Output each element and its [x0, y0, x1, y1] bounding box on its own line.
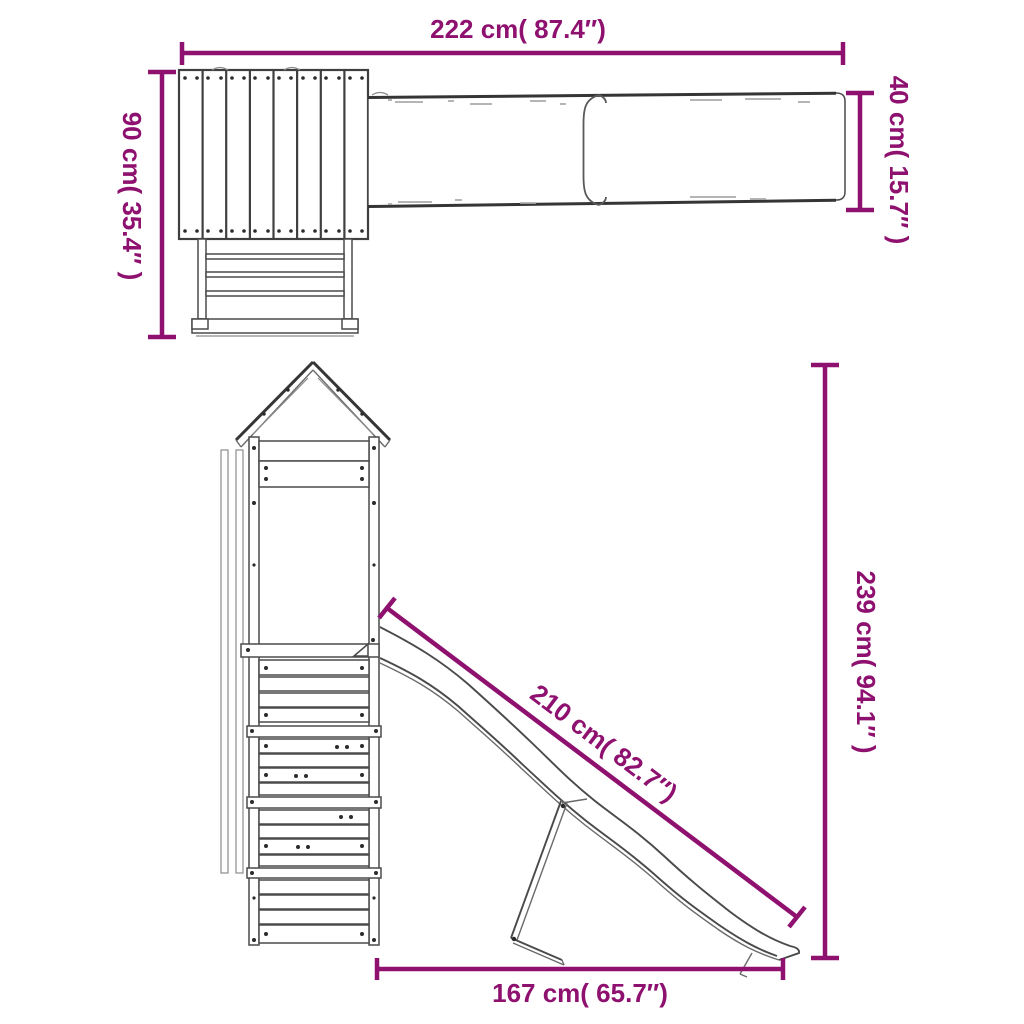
top-view-drawing	[179, 68, 845, 337]
dim-overall-height: 239 cm( 94.1″ )	[811, 365, 881, 958]
side-view-roof	[236, 362, 390, 447]
dim-tower-depth: 90 cm( 35.4″ )	[117, 72, 176, 337]
dim-label-slide-width: 40 cm( 15.7″ )	[884, 76, 914, 245]
side-view-slide	[380, 627, 799, 977]
side-view-tower	[221, 437, 381, 945]
side-view-dimensions: 210 cm( 82.7″) 239 cm( 94.1″ ) 167 cm( 6…	[377, 365, 881, 1008]
dim-label-base-length: 167 cm( 65.7″)	[492, 978, 668, 1008]
diagram-svg: 222 cm( 87.4″) 90 cm( 35.4″ ) 40 cm( 15.…	[0, 0, 1024, 1024]
slide-top-rail	[380, 627, 790, 946]
slide-support-leg	[511, 799, 587, 965]
dim-label-tower-depth: 90 cm( 35.4″ )	[117, 112, 147, 281]
dim-base-length: 167 cm( 65.7″)	[377, 958, 783, 1008]
side-view-drawing	[221, 362, 799, 977]
dimension-diagram: 222 cm( 87.4″) 90 cm( 35.4″ ) 40 cm( 15.…	[0, 0, 1024, 1024]
dim-slide-width: 40 cm( 15.7″ )	[846, 76, 914, 245]
dim-slide-length: 210 cm( 82.7″)	[379, 598, 805, 927]
top-view-roof	[179, 68, 388, 240]
slide-lower-rail	[380, 658, 777, 956]
dim-label-overall-width: 222 cm( 87.4″)	[430, 14, 606, 44]
slide-foot	[779, 946, 799, 960]
top-view-slide	[368, 93, 845, 207]
dim-overall-width: 222 cm( 87.4″)	[182, 14, 843, 65]
top-view-ladder	[192, 239, 358, 336]
dim-label-overall-height: 239 cm( 94.1″ )	[851, 570, 881, 753]
